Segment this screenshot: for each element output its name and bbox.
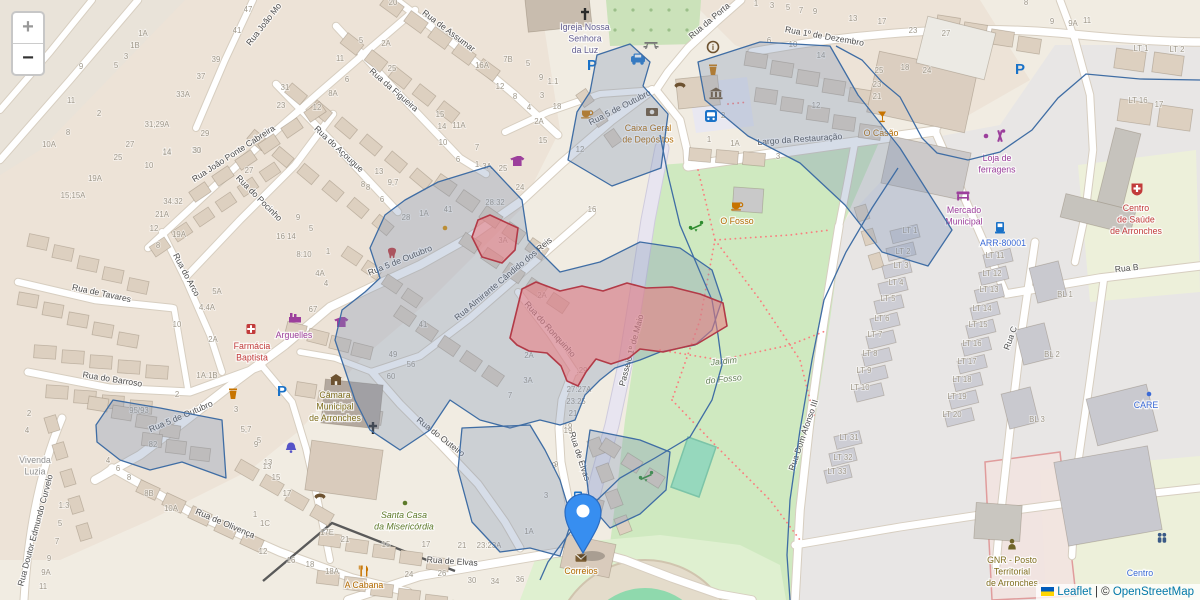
house-number: 19A [88,174,103,183]
house-number: LT 32 [833,453,852,462]
house-number: 12 [313,103,322,112]
poi-label-gnr-posto-territorial: de Arronches [986,578,1038,588]
poi-label-vivenda-luzia: Vivenda [19,455,51,465]
house-number: 24 [923,66,932,75]
house-number: 13 [849,14,858,23]
building [295,382,317,399]
house-number: 13 [263,462,272,471]
house-number: LT 13 [979,285,998,294]
house-number: 15 [272,473,281,482]
poi-label-vivenda-luzia: Luzia [24,467,45,477]
poi-label-igreja-nossa-senhora-da-luz: da Luz [572,45,598,55]
land-area [606,0,701,46]
svg-text:P: P [277,383,287,400]
tree-dot [667,8,670,11]
tree-dot [685,8,688,11]
house-number: 14 [163,148,172,157]
openstreetmap-link[interactable]: OpenStreetMap [1113,586,1194,598]
house-number: 10 [173,320,182,329]
house-number: 4 [106,456,111,465]
house-number: 39 [212,55,221,64]
house-number: 30 [468,576,477,585]
zoom-control: + − [11,11,45,76]
house-number: 14 [438,122,447,131]
house-number: 15 [436,110,445,119]
dot-icon [984,134,989,139]
house-number: LT 14 [972,304,992,313]
zoom-in-button[interactable]: + [13,13,43,44]
house-number: 3 [124,52,128,61]
poi-label-a-cabana: A Cabana [345,580,384,590]
tree-dot [631,8,634,11]
poi-label-arguelles: Arguelles [276,330,313,340]
house-number: 27 [942,29,951,38]
house-number: LT 8 [863,349,878,358]
house-number: LT 15 [968,320,988,329]
house-number: 2 [175,390,179,399]
house-number: 3 [234,405,238,414]
house-number: 5 [786,3,791,12]
house-number: LT 9 [857,366,872,375]
house-number: BL 2 [1044,350,1060,359]
house-number: 3 [770,1,774,10]
house-number: 3 [776,152,780,161]
house-number: 4 [324,279,329,288]
building [688,148,711,163]
poi-label-care: CARE [1134,400,1159,410]
house-number: 1 [475,160,479,169]
house-number: 25 [875,66,884,75]
house-number: 18 [901,63,910,72]
house-number: 9 [1050,17,1054,26]
building [742,152,765,167]
poi-label-camara-municipal: Câmara [319,390,350,400]
house-number: 1 [326,247,330,256]
copyright-symbol: © [1101,586,1113,598]
house-number: 25 [114,153,123,162]
house-number: 8A [328,89,338,98]
poi-label-o-fosso: O Fosso [720,216,753,226]
poi-label-gnr-posto-territorial: Territorial [994,567,1030,577]
house-number: LT 3 [894,261,909,270]
poi-label-centro-de-saude: de Arronches [1110,226,1162,236]
house-number: 8:10 [296,250,312,259]
tree-dot [631,28,634,31]
poi-label-centro-de-saude: Centro [1123,203,1150,213]
house-number: 5 [526,59,531,68]
house-number: 12 [259,547,268,556]
house-number: LT 7 [868,330,883,339]
house-number: LT 18 [952,375,971,384]
house-number: LT 4 [889,278,905,287]
poi-label-mercado-municipal: Mercado [947,205,981,215]
building [732,187,764,213]
tree-dot [667,28,670,31]
pharmacy-icon [247,324,256,334]
house-number: 2A [208,335,218,344]
house-number: LT 16 [962,339,981,348]
tree-dot [649,28,652,31]
house-number: 27 [126,140,135,149]
house-number: 12 [496,82,505,91]
house-number: 17 [1155,100,1164,109]
dot-icon [1147,392,1152,397]
house-number: 26 [438,569,447,578]
leaflet-link[interactable]: Leaflet [1057,586,1092,598]
house-number: LT 6 [875,314,890,323]
tree-dot [649,8,652,11]
house-number: LT 1 [1134,44,1149,53]
house-number: 2A [534,117,544,126]
poi-label-igreja-nossa-senhora-da-luz: Igreja Nossa [560,22,609,32]
ukraine-flag-icon [1041,587,1054,596]
building [34,345,57,360]
house-number: 6 [456,155,460,164]
poi-label-farmacia-baptista: Farmácia [234,341,271,351]
house-number: 11 [336,54,344,63]
house-number: 21 [341,535,350,544]
house-number: 10A [164,504,179,513]
house-number: LT 19 [947,392,966,401]
bus-icon [705,110,717,122]
poi-label-igreja-nossa-senhora-da-luz: Senhora [568,34,601,44]
house-number: 1 [707,135,711,144]
poi-label-loja-de-ferragens: ferragens [978,165,1016,175]
house-number: 18 [553,102,562,111]
house-number: 21 [873,92,882,101]
poi-label-santa-casa-da-misericordia: Santa Casa [381,510,427,520]
house-number: 7B [503,55,513,64]
house-number: 36 [516,575,525,584]
house-number: 8B [144,489,154,498]
house-number: 27 [245,166,254,175]
poi-label-camara-municipal: Municipal [316,402,353,412]
house-number: 9 [813,7,817,16]
house-number: 30 [193,146,202,155]
house-number: 24 [405,570,414,579]
house-number: 17 [283,489,292,498]
house-number: LT 31 [839,433,858,442]
house-number: 4 [527,103,532,112]
house-number: 24 [516,183,525,192]
building [146,365,169,380]
house-number: 5 [58,519,63,528]
house-number: 13 [375,167,384,176]
house-number: BL 3 [1029,415,1045,424]
house-number: 8 [513,92,517,101]
house-number: 4 [25,426,30,435]
house-number: 25 [388,64,397,73]
house-number: 5 [309,224,314,233]
house-number: 1 [754,0,758,8]
house-number: 31;29A [145,120,171,129]
house-number: 7 [475,143,479,152]
map-stage: PPPi Rua de AssumarRua da FigueiraRua do… [0,0,1200,600]
building [399,550,423,566]
poi-label-centro: Centro [1127,568,1154,578]
house-number: 8 [366,183,370,192]
poi-label-loja-de-ferragens: Loja de [983,153,1012,163]
house-number: 18 [306,560,315,569]
tree-dot [613,8,616,11]
house-number: 9 [296,213,300,222]
house-number: 16 14 [276,232,296,241]
house-number: 23 [873,80,882,89]
building [974,502,1022,541]
house-number: 8 [156,241,160,250]
house-number: 9,7 [388,178,399,187]
poi-label-santa-casa-da-misericordia: da Misericórdia [374,522,434,532]
building [305,440,383,500]
house-number: 7 [799,6,803,15]
house-number: 33A [176,90,191,99]
poi-label-correios: Correios [564,566,598,576]
house-number: LT 5 [881,294,897,303]
attribution-separator: | [1092,586,1101,598]
house-number: 8 [361,180,365,189]
house-number: 34 [491,577,500,586]
house-number: 15 [382,540,391,549]
house-number: 6 [380,195,384,204]
house-number: LT 33 [827,467,846,476]
house-number: 11 [39,582,47,591]
house-number: 5 [114,61,119,70]
building [1016,36,1041,54]
house-number: 9 [47,554,51,563]
building [87,396,109,412]
house-number: 11 [67,96,75,105]
house-number: 16A [475,61,490,70]
house-number: 11A [452,121,466,130]
house-number: 15;15A [61,191,87,200]
house-number: LT 16 [1128,96,1147,105]
house-number: 34:32 [163,197,183,206]
house-number: 21A [155,210,170,219]
poi-label-centro-de-saude: de Saúde [1117,215,1155,225]
house-number: 9 [254,440,258,449]
house-number: 9 [539,73,543,82]
house-number: 5A [212,287,222,296]
house-number: 18A [325,567,340,576]
map-canvas[interactable]: PPPi Rua de AssumarRua da FigueiraRua do… [0,0,1200,600]
poi-label-arr-80001: ARR-80001 [980,238,1026,248]
poi-label-farmacia-baptista: Baptista [236,353,268,363]
house-number: 8 [1024,0,1028,7]
tree-dot [613,28,616,31]
house-number: 12 [150,224,159,233]
house-number: BL 1 [1057,290,1073,299]
house-number: LT 2 [1170,45,1185,54]
house-number: 4.4A [199,303,216,312]
building [1054,446,1162,546]
house-number: 11 [1083,16,1091,25]
house-number: 37 [197,72,206,81]
dot-icon [403,501,408,506]
house-number: 23 [277,101,286,110]
house-number: 41 [233,26,242,35]
house-number: 67 [309,305,318,314]
house-number: 6 [116,464,120,473]
house-number: LT 10 [850,383,870,392]
building [46,385,69,400]
house-number: 1.1 [548,77,559,86]
house-number: 25 [499,164,508,173]
house-number: 1:3 [59,501,70,510]
house-number: 5 [359,36,364,45]
house-number: 1A [730,139,740,148]
poi-label-camara-municipal: de Arronches [309,413,361,423]
house-number: 16 [588,205,597,214]
house-number: 20 [389,0,398,7]
house-number: 10 [439,138,448,147]
house-number: 16 [287,556,296,565]
house-number: 2 [27,409,31,418]
zoom-out-button[interactable]: − [13,44,43,74]
building [715,150,738,165]
building [62,350,85,365]
house-number: 6 [345,75,349,84]
house-number: 7 [55,537,59,546]
house-number: LT 17 [957,357,976,366]
house-number: 9 [79,62,83,71]
house-number: 1C [260,519,270,528]
house-number: 1A [138,29,148,38]
parking-icon: P [1015,61,1025,78]
house-number: 1B [130,41,140,50]
house-number: 9A [1068,19,1078,28]
house-number: 23 [909,26,918,35]
building [90,355,113,370]
house-number: 19A [172,230,187,239]
house-number: LT 12 [982,269,1001,278]
house-number: 17E [320,528,334,537]
house-number: 9A [41,568,51,577]
house-number: 21 [458,541,467,550]
poi-label-mercado-municipal: Municipal [945,217,982,227]
house-number: 17 [878,17,887,26]
svg-text:i: i [712,43,714,52]
house-number: 8 [66,128,70,137]
marker-pin-hole [577,505,590,518]
parking-icon: P [277,383,287,400]
house-number: LT 11 [986,251,1005,260]
svg-text:P: P [1015,61,1025,78]
building [1152,52,1184,76]
house-number: 1A:1B [196,371,217,380]
attribution-bar: Leaflet | © OpenStreetMap [1036,584,1200,600]
house-number: 2 [97,109,101,118]
house-number: 5,7 [241,425,252,434]
house-number: 31 [281,83,290,92]
house-number: 4A [315,269,325,278]
charging-icon [995,222,1005,234]
house-number: 8 [127,473,131,482]
hospital-icon [1132,184,1143,196]
house-number: 47 [244,5,253,14]
house-number: 1 [253,510,257,519]
building [118,360,141,375]
house-number: 10 [145,161,154,170]
house-number: 15 [539,136,548,145]
house-number: LT 20 [942,410,962,419]
house-number: 29 [201,129,210,138]
house-number: 17 [422,540,431,549]
house-number: 19 [564,426,573,435]
house-number: 3 [540,91,544,100]
house-number: 10A [42,140,57,149]
poi-label-gnr-posto-territorial: GNR - Posto [987,555,1037,565]
house-number: 2A [381,39,391,48]
